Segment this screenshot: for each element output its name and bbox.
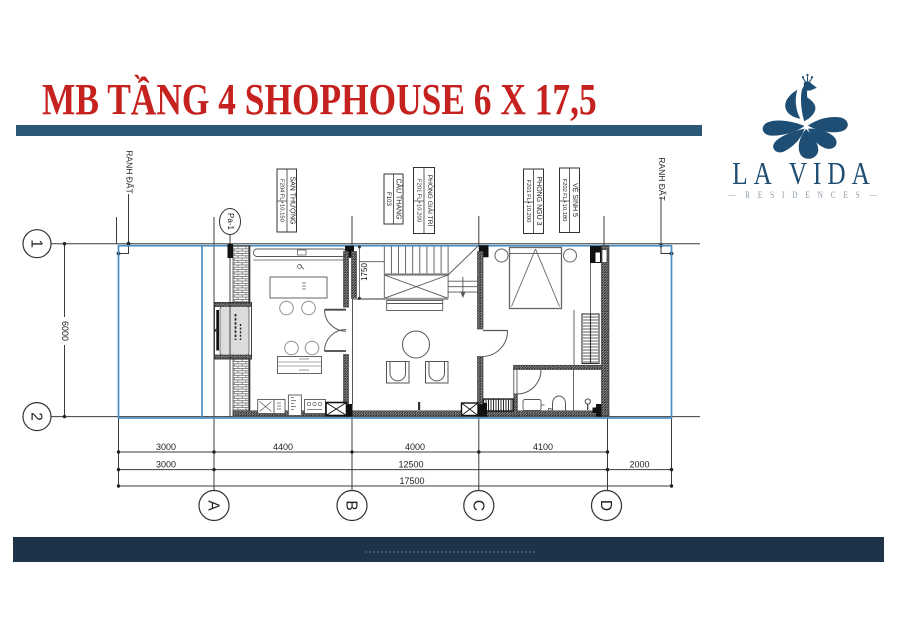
svg-text:4000: 4000 [405,442,425,452]
svg-text:17500: 17500 [399,476,424,486]
svg-text:F201 FL+10.200: F201 FL+10.200 [525,180,531,224]
svg-text:3000: 3000 [156,442,176,452]
svg-text:3000: 3000 [156,460,176,470]
svg-text:Pa-1: Pa-1 [226,213,235,230]
svg-text:PHÒNG GIẢI TRÍ: PHÒNG GIẢI TRÍ [426,175,435,227]
svg-text:2000: 2000 [629,460,649,470]
svg-text:1: 1 [28,239,45,248]
svg-text:F202 FL+10.180: F202 FL+10.180 [561,179,567,223]
svg-text:A: A [205,500,222,511]
svg-text:F204 FL+10.150: F204 FL+10.150 [279,179,285,223]
svg-text:F201 FL+10.200: F201 FL+10.200 [415,179,421,223]
svg-text:12500: 12500 [398,460,423,470]
svg-text:4400: 4400 [273,442,293,452]
svg-text:C: C [469,500,486,511]
svg-text:RANH ĐẤT: RANH ĐẤT [657,157,667,200]
svg-text:4100: 4100 [533,442,553,452]
svg-text:6000: 6000 [60,321,70,341]
svg-text:1750: 1750 [360,263,369,281]
svg-text:PHÒNG NGỦ 3: PHÒNG NGỦ 3 [535,176,544,225]
svg-text:RANH ĐẤT: RANH ĐẤT [124,150,134,193]
svg-text:VỆ SINH 5: VỆ SINH 5 [571,183,580,217]
svg-text:D: D [597,500,614,511]
svg-text:SÂN THƯỢNG: SÂN THƯỢNG [288,176,297,224]
svg-text:B: B [343,500,360,510]
svg-text:2: 2 [28,412,45,421]
svg-text:F103: F103 [385,192,392,207]
